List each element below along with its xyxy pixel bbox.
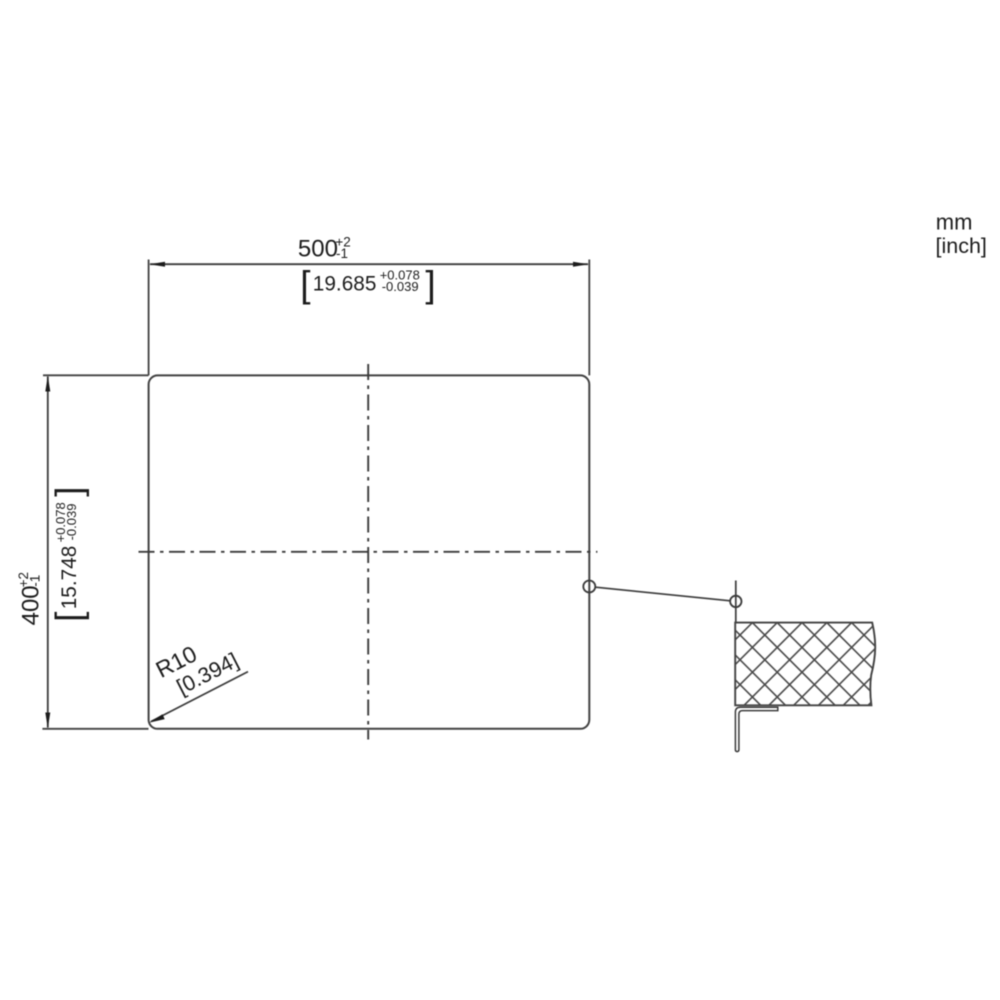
svg-text:400: 400: [18, 585, 45, 625]
svg-text:-1: -1: [336, 246, 348, 261]
svg-text:]: ]: [425, 264, 435, 305]
svg-text:-0.039: -0.039: [382, 279, 419, 294]
svg-text:-1: -1: [28, 575, 43, 587]
svg-text:[: [: [48, 612, 89, 622]
svg-text:mm: mm: [936, 210, 973, 235]
svg-text:500: 500: [298, 236, 338, 263]
svg-text:-0.039: -0.039: [64, 504, 79, 541]
svg-text:[inch]: [inch]: [936, 234, 987, 258]
svg-text:[: [: [300, 264, 310, 305]
svg-text:]: ]: [49, 486, 90, 496]
svg-text:19.685: 19.685: [313, 273, 377, 296]
svg-text:15.748: 15.748: [58, 546, 81, 610]
